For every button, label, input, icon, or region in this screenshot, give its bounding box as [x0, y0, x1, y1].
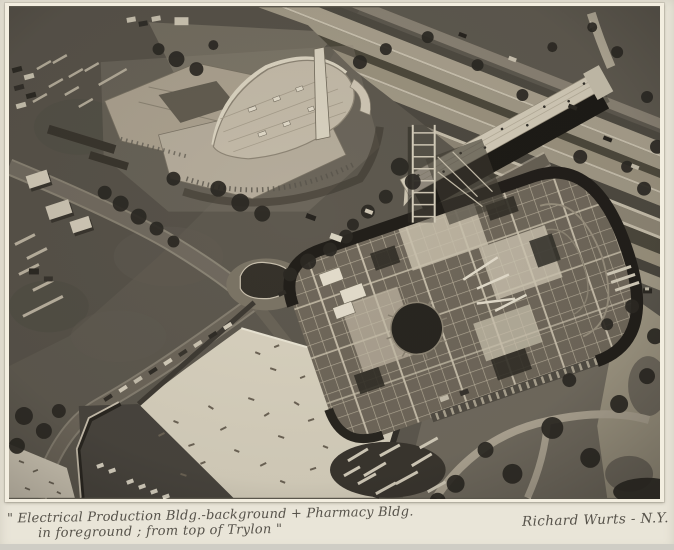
aerial-photo: [9, 6, 660, 499]
photo-paper-border: [5, 3, 664, 502]
mat-caption-area: " Electrical Production Bldg.-background…: [0, 503, 674, 550]
mat-bottom-edge: [0, 544, 674, 550]
aerial-photo-illustration: [9, 6, 660, 499]
photo-vignette: [9, 7, 660, 497]
caption-line-2: in foreground ; from top of Trylon ": [38, 522, 283, 541]
matted-photograph: " Electrical Production Bldg.-background…: [0, 0, 674, 550]
photographer-signature: Richard Wurts - N.Y.: [522, 510, 669, 530]
